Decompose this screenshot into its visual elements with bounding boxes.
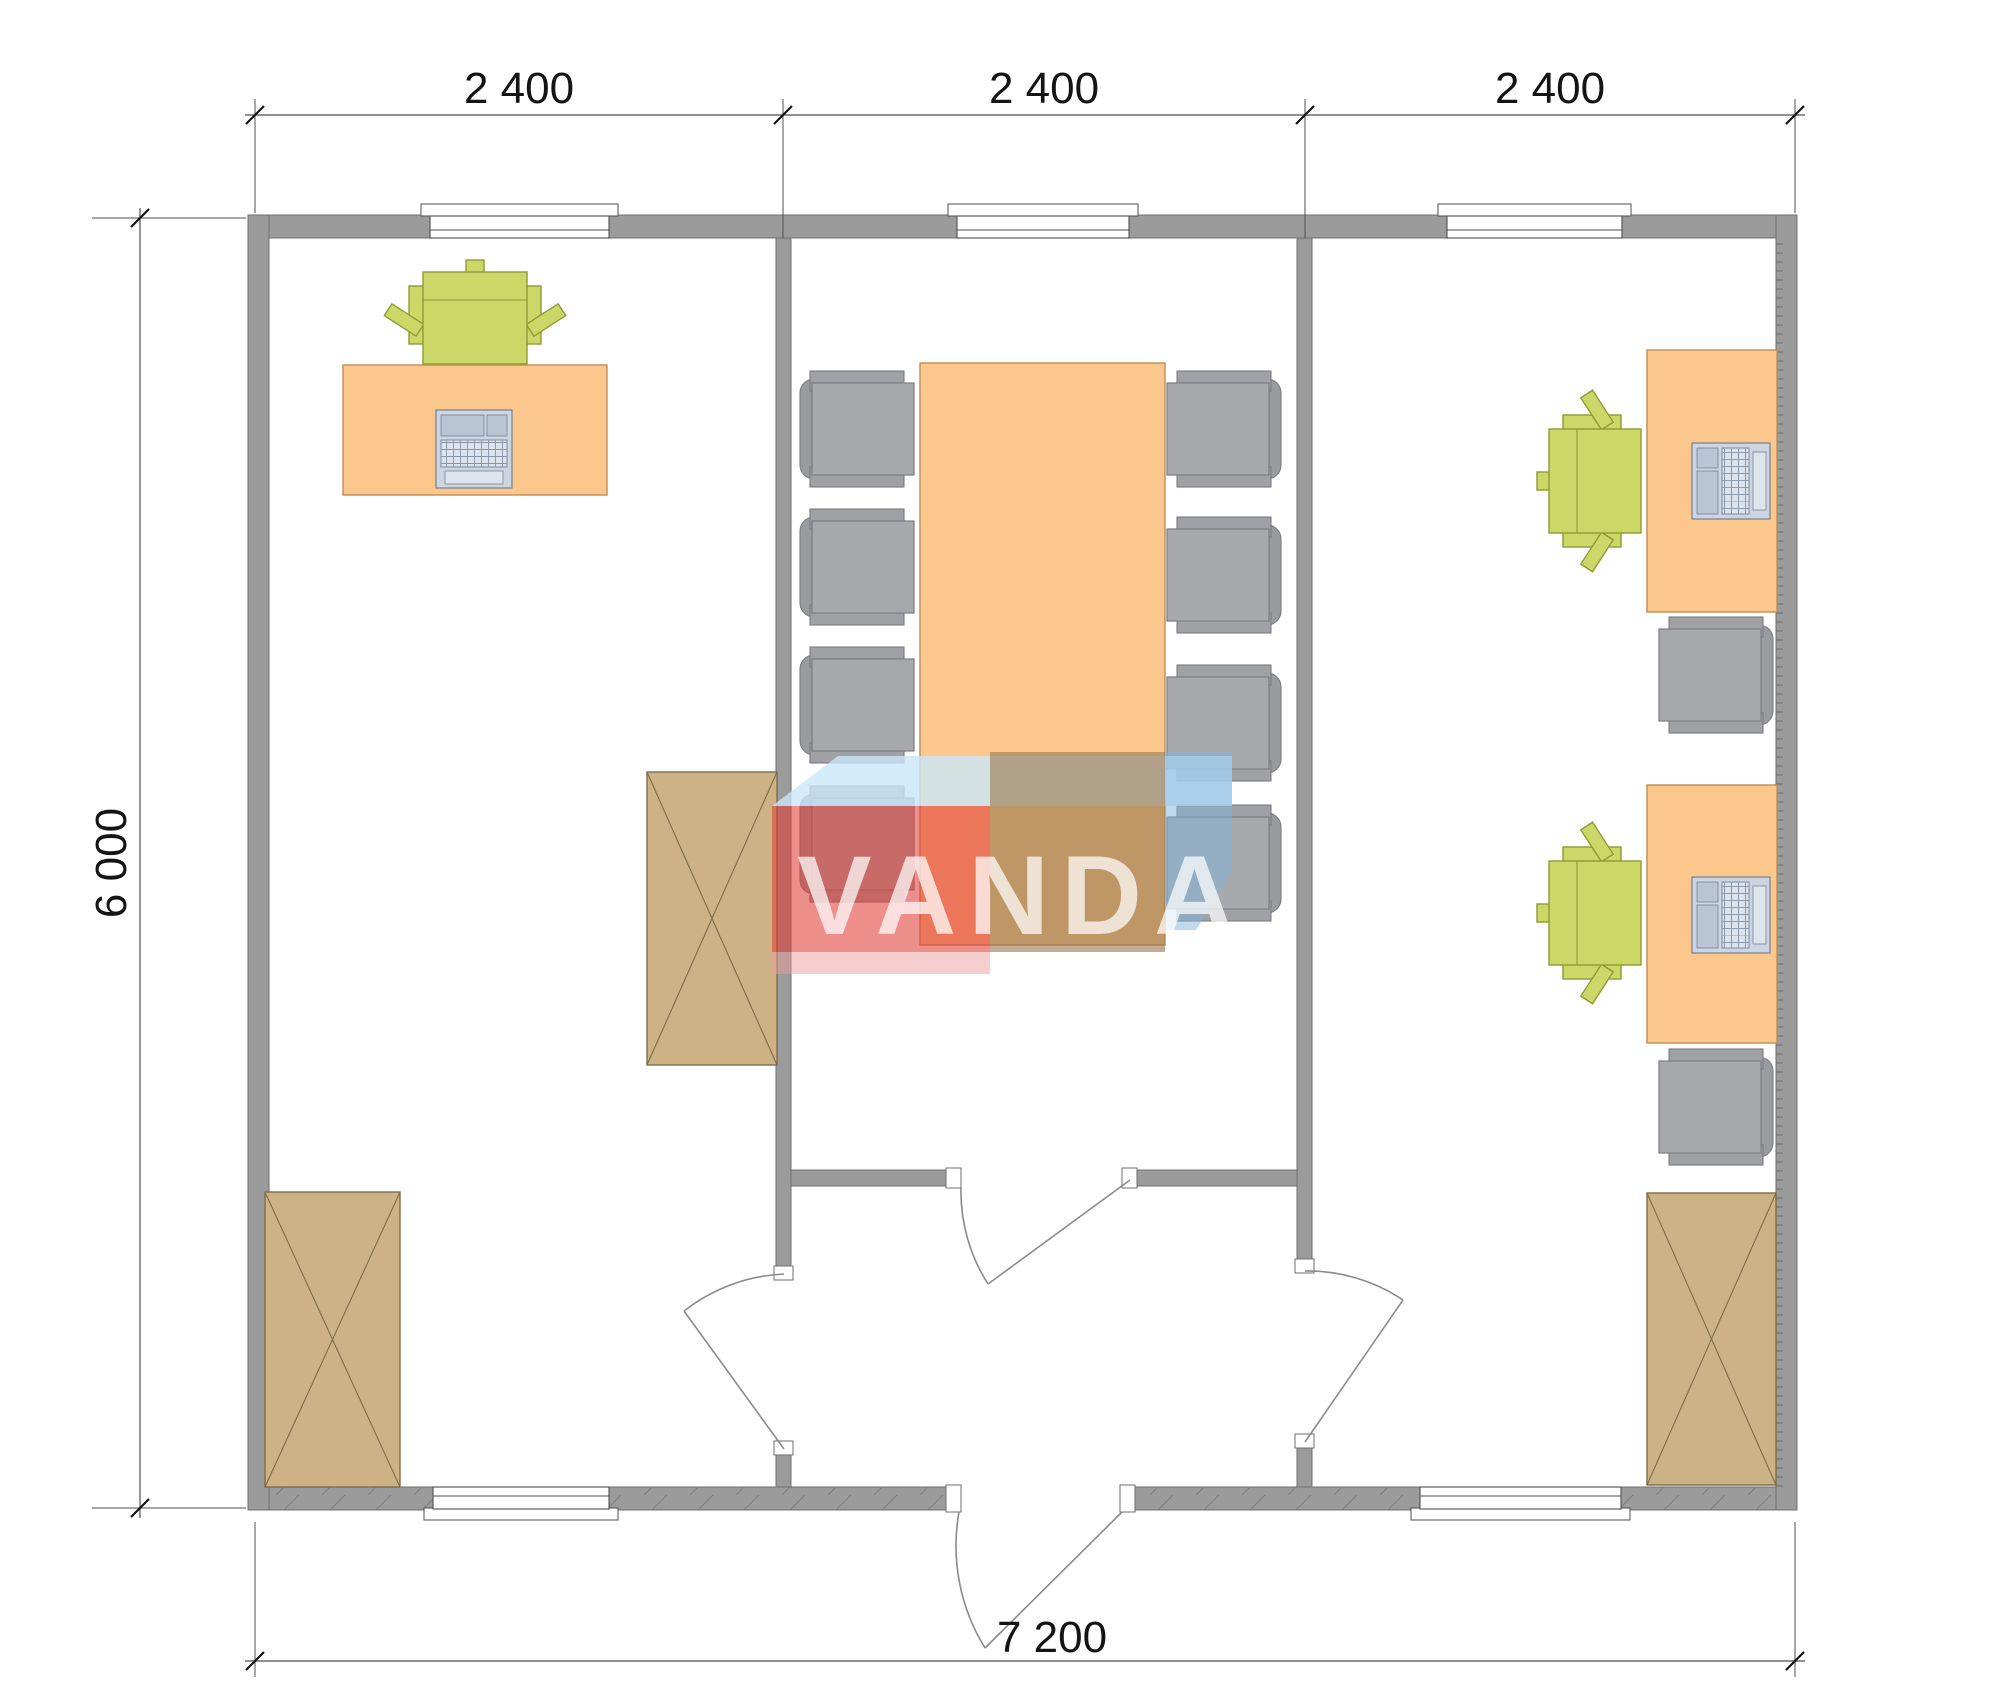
office-chair-green (384, 260, 565, 364)
interior-wall-1 (776, 238, 791, 1266)
office-chair-gray (1659, 617, 1773, 733)
door-jamb (1120, 1485, 1135, 1512)
office-chair-gray (1659, 1049, 1773, 1165)
door-jamb (1295, 1434, 1314, 1448)
vestibule-wall-right (1137, 1170, 1297, 1186)
dim-label-top-2: 2 400 (989, 64, 1099, 113)
window (948, 204, 1138, 238)
laptop (436, 410, 512, 488)
window (1438, 204, 1631, 238)
laptop (1692, 443, 1770, 519)
dim-label-top-3: 2 400 (1495, 64, 1605, 113)
window (421, 204, 618, 238)
entry-door-opening (961, 1486, 1120, 1511)
interior-wall-2-stub (1297, 1448, 1312, 1487)
window (424, 1487, 618, 1520)
dim-label-top-1: 2 400 (464, 64, 574, 113)
door-jamb (946, 1168, 961, 1188)
office-chair-gray (1167, 517, 1281, 633)
office-chair-gray (1167, 371, 1281, 487)
office-chair-gray (800, 371, 914, 487)
office-chair-gray (800, 509, 914, 625)
laptop (1692, 877, 1770, 953)
storage-cabinet (265, 1192, 400, 1487)
vestibule-wall-left (791, 1170, 948, 1186)
door-jamb (774, 1266, 793, 1280)
door-middle-room (961, 1180, 1130, 1284)
interior-wall-1-stub (776, 1455, 791, 1487)
storage-cabinet (1647, 1193, 1776, 1485)
dim-label-bottom: 7 200 (997, 1613, 1107, 1662)
storage-cabinet (647, 772, 777, 1065)
watermark-brand-text: VANDA (797, 833, 1247, 958)
vanda-watermark: VANDA (772, 752, 1247, 974)
interior-wall-2 (1297, 238, 1312, 1259)
room-right-furniture (1537, 350, 1777, 1485)
office-chair-gray (800, 647, 914, 763)
floor-plan-drawing: 2 400 2 400 2 400 6 000 7 200 VANDA (0, 0, 2000, 1704)
room-left-furniture (265, 260, 777, 1487)
dim-label-left: 6 000 (87, 808, 136, 918)
door-jamb (946, 1485, 961, 1512)
door-left-room (684, 1274, 784, 1449)
office-chair-green (1537, 822, 1641, 1003)
window (1411, 1487, 1630, 1520)
door-right-room (1305, 1271, 1403, 1442)
office-chair-green (1537, 390, 1641, 571)
doors (684, 1180, 1403, 1648)
floor-plan-canvas: 2 400 2 400 2 400 6 000 7 200 VANDA (0, 0, 2000, 1704)
